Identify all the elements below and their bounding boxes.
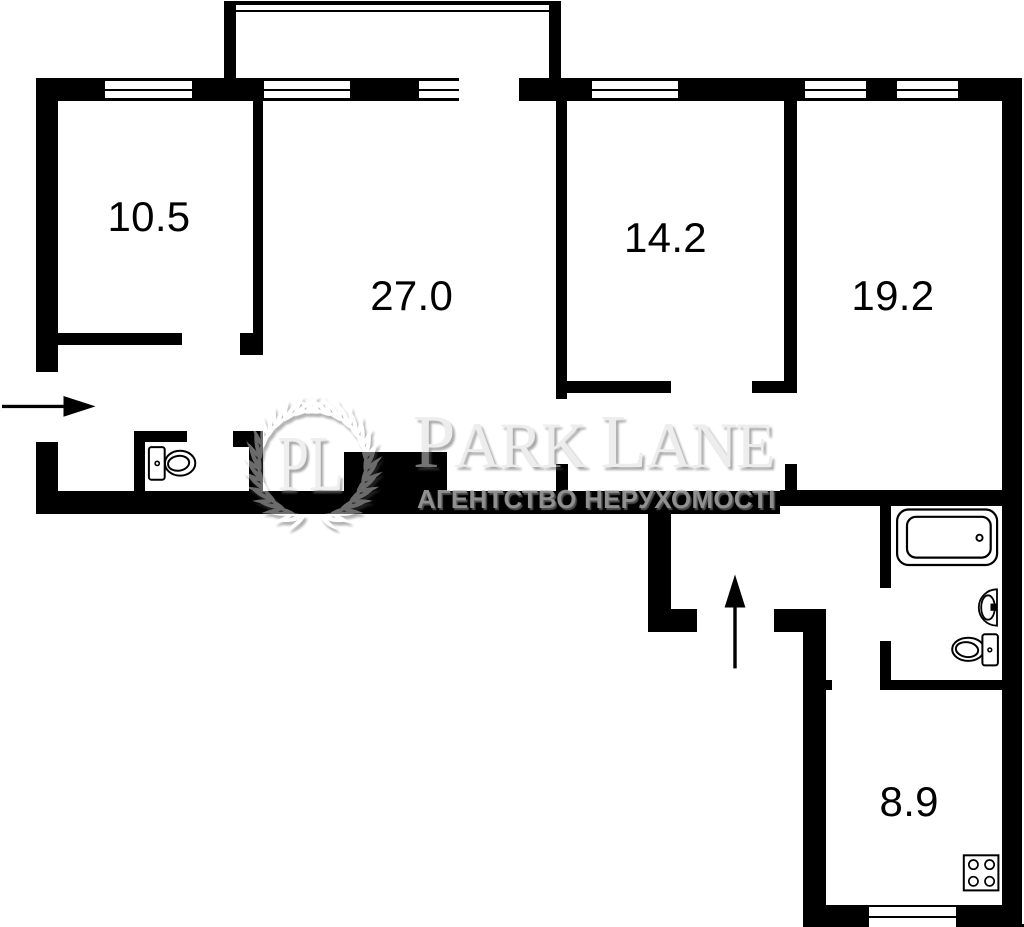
svg-text:PL: PL <box>278 421 344 508</box>
